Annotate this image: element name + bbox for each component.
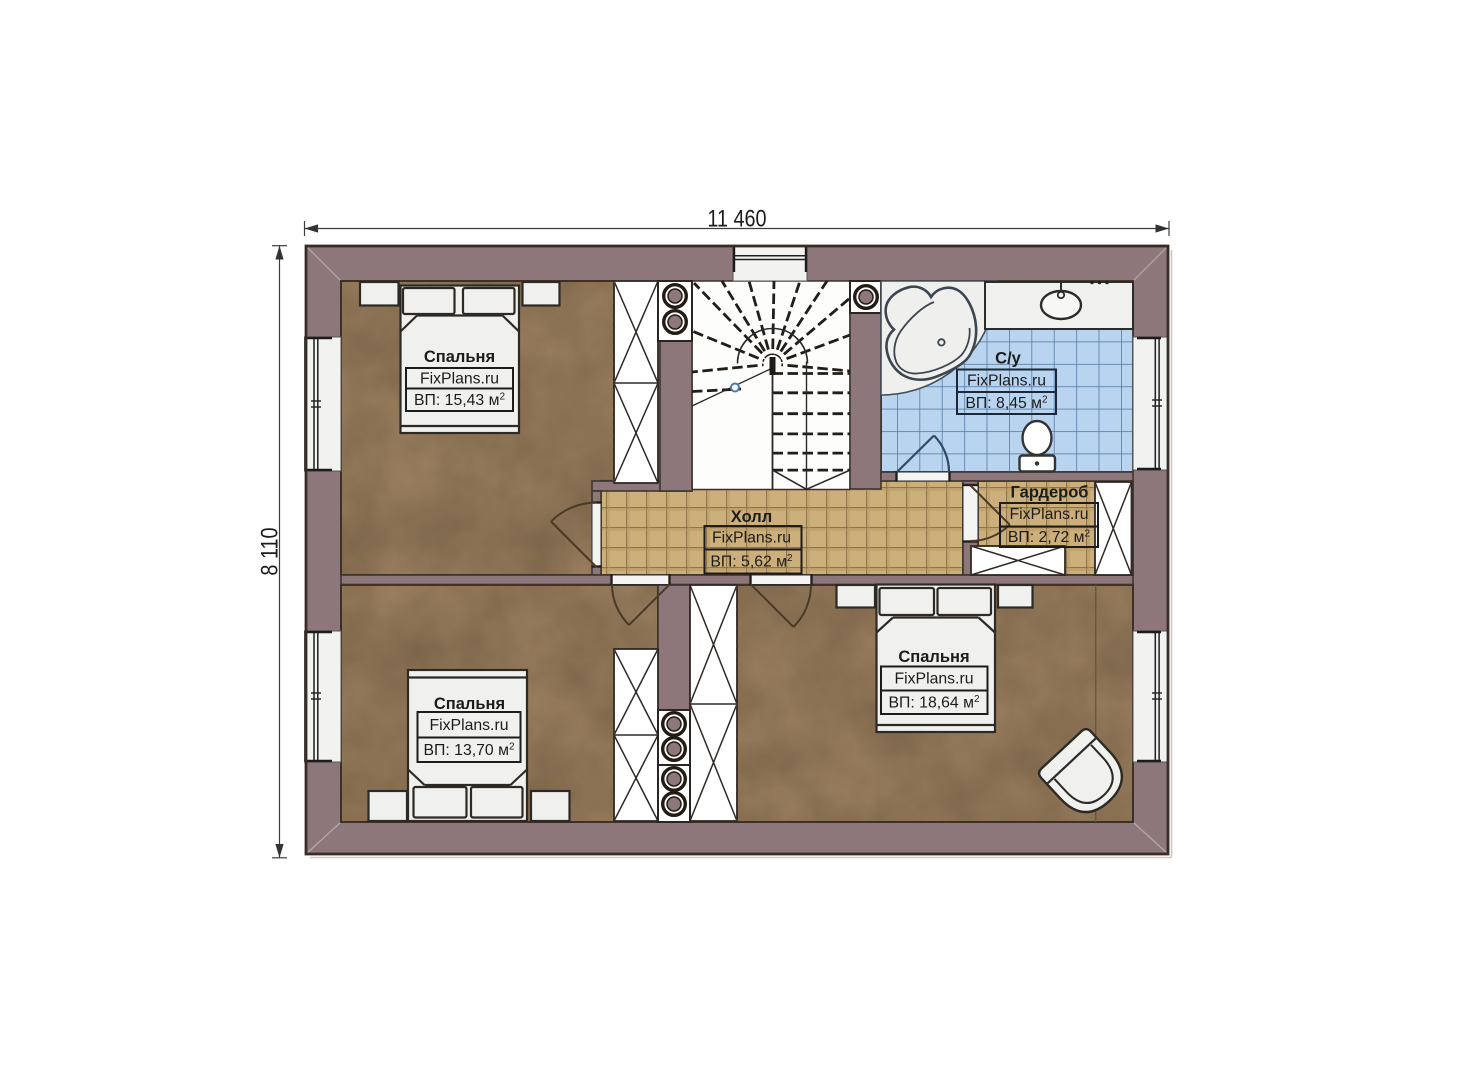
svg-text:Спальня: Спальня xyxy=(434,695,505,713)
svg-text:ВП: 13,70 м2: ВП: 13,70 м2 xyxy=(423,742,514,760)
svg-text:ВП: 15,43 м2: ВП: 15,43 м2 xyxy=(414,392,505,410)
svg-text:FixPlans.ru: FixPlans.ru xyxy=(429,717,508,734)
svg-text:FixPlans.ru: FixPlans.ru xyxy=(894,671,973,688)
svg-text:11 460: 11 460 xyxy=(707,205,766,232)
svg-text:FixPlans.ru: FixPlans.ru xyxy=(420,371,499,388)
svg-text:FixPlans.ru: FixPlans.ru xyxy=(1009,506,1088,523)
svg-text:ВП: 18,64 м2: ВП: 18,64 м2 xyxy=(888,694,979,712)
svg-text:Спальня: Спальня xyxy=(898,648,969,666)
svg-text:ВП: 5,62 м2: ВП: 5,62 м2 xyxy=(710,553,793,571)
svg-text:С/у: С/у xyxy=(995,350,1022,368)
svg-text:FixPlans.ru: FixPlans.ru xyxy=(967,373,1046,390)
svg-text:ВП: 8,45 м2: ВП: 8,45 м2 xyxy=(965,395,1048,413)
svg-text:ВП: 2,72 м2: ВП: 2,72 м2 xyxy=(1008,529,1091,547)
svg-text:8 110: 8 110 xyxy=(256,527,283,575)
svg-text:Спальня: Спальня xyxy=(424,348,495,366)
svg-text:Гардероб: Гардероб xyxy=(1011,484,1089,502)
svg-text:Холл: Холл xyxy=(731,508,772,526)
svg-text:FixPlans.ru: FixPlans.ru xyxy=(712,530,791,547)
